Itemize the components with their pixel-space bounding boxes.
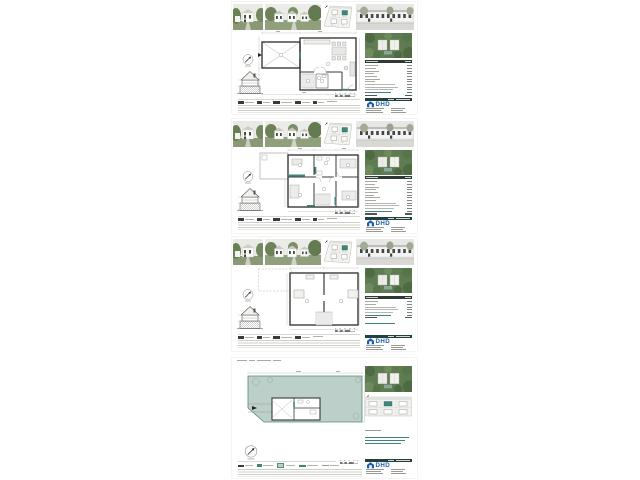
north-arrow-icon xyxy=(242,170,254,184)
north-arrow-icon xyxy=(244,444,258,460)
title-block xyxy=(238,216,360,221)
caption-line xyxy=(365,430,381,431)
aerial-rendering xyxy=(365,366,412,392)
section-drawing xyxy=(237,302,263,332)
table-header xyxy=(365,60,412,63)
aerial-rendering xyxy=(365,268,412,293)
fine-print xyxy=(238,469,362,477)
title-block xyxy=(238,99,360,104)
street-rendering xyxy=(265,121,321,147)
note-line xyxy=(365,323,395,324)
dimension-text-row xyxy=(237,360,281,361)
logo-address-lines xyxy=(365,227,412,232)
logo-header-bar xyxy=(365,98,412,101)
street-rendering xyxy=(265,239,321,265)
exterior-rendering xyxy=(233,4,263,30)
elevation-rendering xyxy=(356,121,414,147)
table-row-total xyxy=(365,213,412,216)
north-arrow-icon xyxy=(242,53,254,67)
logo-header-bar xyxy=(365,217,412,220)
legend-item xyxy=(238,465,253,468)
elevation-rendering xyxy=(356,239,414,265)
table-row-total xyxy=(365,94,412,97)
dhd-house-icon xyxy=(367,338,374,345)
floor-plan-drawing xyxy=(258,265,360,333)
dhd-wordmark: DHD xyxy=(376,101,391,108)
site-plan-key-map xyxy=(365,395,412,417)
site-plan-drawing xyxy=(236,370,366,434)
scale-bar xyxy=(340,460,358,465)
dhd-logo-block: DHD xyxy=(365,459,412,474)
table-header xyxy=(365,296,412,299)
room-area-table xyxy=(365,176,412,215)
floor-plan-drawing xyxy=(258,30,360,98)
logo-header-bar xyxy=(365,335,412,338)
fine-print xyxy=(238,340,360,348)
plan-sheet-2: DHD xyxy=(232,119,417,233)
table-row-total xyxy=(365,317,412,320)
legend-item xyxy=(299,465,318,467)
street-rendering xyxy=(265,4,321,30)
logo-header-bar xyxy=(365,459,412,462)
dhd-logo-block: DHD xyxy=(365,217,412,232)
note-line xyxy=(365,440,405,441)
exterior-rendering xyxy=(233,121,263,147)
fine-print xyxy=(238,105,360,113)
dhd-logo-block: DHD xyxy=(365,335,412,350)
room-area-table xyxy=(365,60,412,97)
scale-bar xyxy=(335,210,355,215)
exterior-rendering xyxy=(233,239,263,265)
legend-item xyxy=(322,465,339,466)
section-drawing xyxy=(237,184,263,214)
site-plan-thumbnail xyxy=(323,121,354,147)
dhd-wordmark: DHD xyxy=(376,220,391,227)
logo-address-lines xyxy=(365,345,412,350)
site-plan-sheet: DHD xyxy=(232,358,417,478)
aerial-rendering xyxy=(365,33,412,58)
dhd-wordmark: DHD xyxy=(376,462,391,469)
site-plan-thumbnail xyxy=(323,239,354,265)
note-line xyxy=(365,437,409,438)
logo-address-lines xyxy=(365,469,412,474)
plan-sheet-3: DHD xyxy=(232,237,417,351)
note-line xyxy=(365,443,401,444)
dhd-house-icon xyxy=(367,101,374,108)
dhd-house-icon xyxy=(367,220,374,227)
title-block xyxy=(238,334,360,339)
site-plan-thumbnail xyxy=(323,4,354,30)
north-arrow-icon xyxy=(242,288,254,302)
dhd-logo-block: DHD xyxy=(365,98,412,113)
logo-address-lines xyxy=(365,108,412,113)
table-header xyxy=(365,176,412,179)
aerial-rendering xyxy=(365,150,412,175)
elevation-rendering xyxy=(356,4,414,30)
fine-print xyxy=(238,222,360,230)
legend-item xyxy=(257,464,273,467)
section-drawing xyxy=(237,67,263,97)
scale-bar xyxy=(335,328,355,333)
floor-plan-drawing xyxy=(258,147,360,215)
room-area-table xyxy=(365,296,412,319)
scale-bar xyxy=(335,93,355,98)
legend-item xyxy=(277,463,294,468)
plan-sheet-1: DHD xyxy=(232,2,417,114)
document-canvas: DHD xyxy=(0,0,640,480)
legend xyxy=(238,461,336,468)
dhd-house-icon xyxy=(367,462,374,469)
dhd-wordmark: DHD xyxy=(376,338,391,345)
